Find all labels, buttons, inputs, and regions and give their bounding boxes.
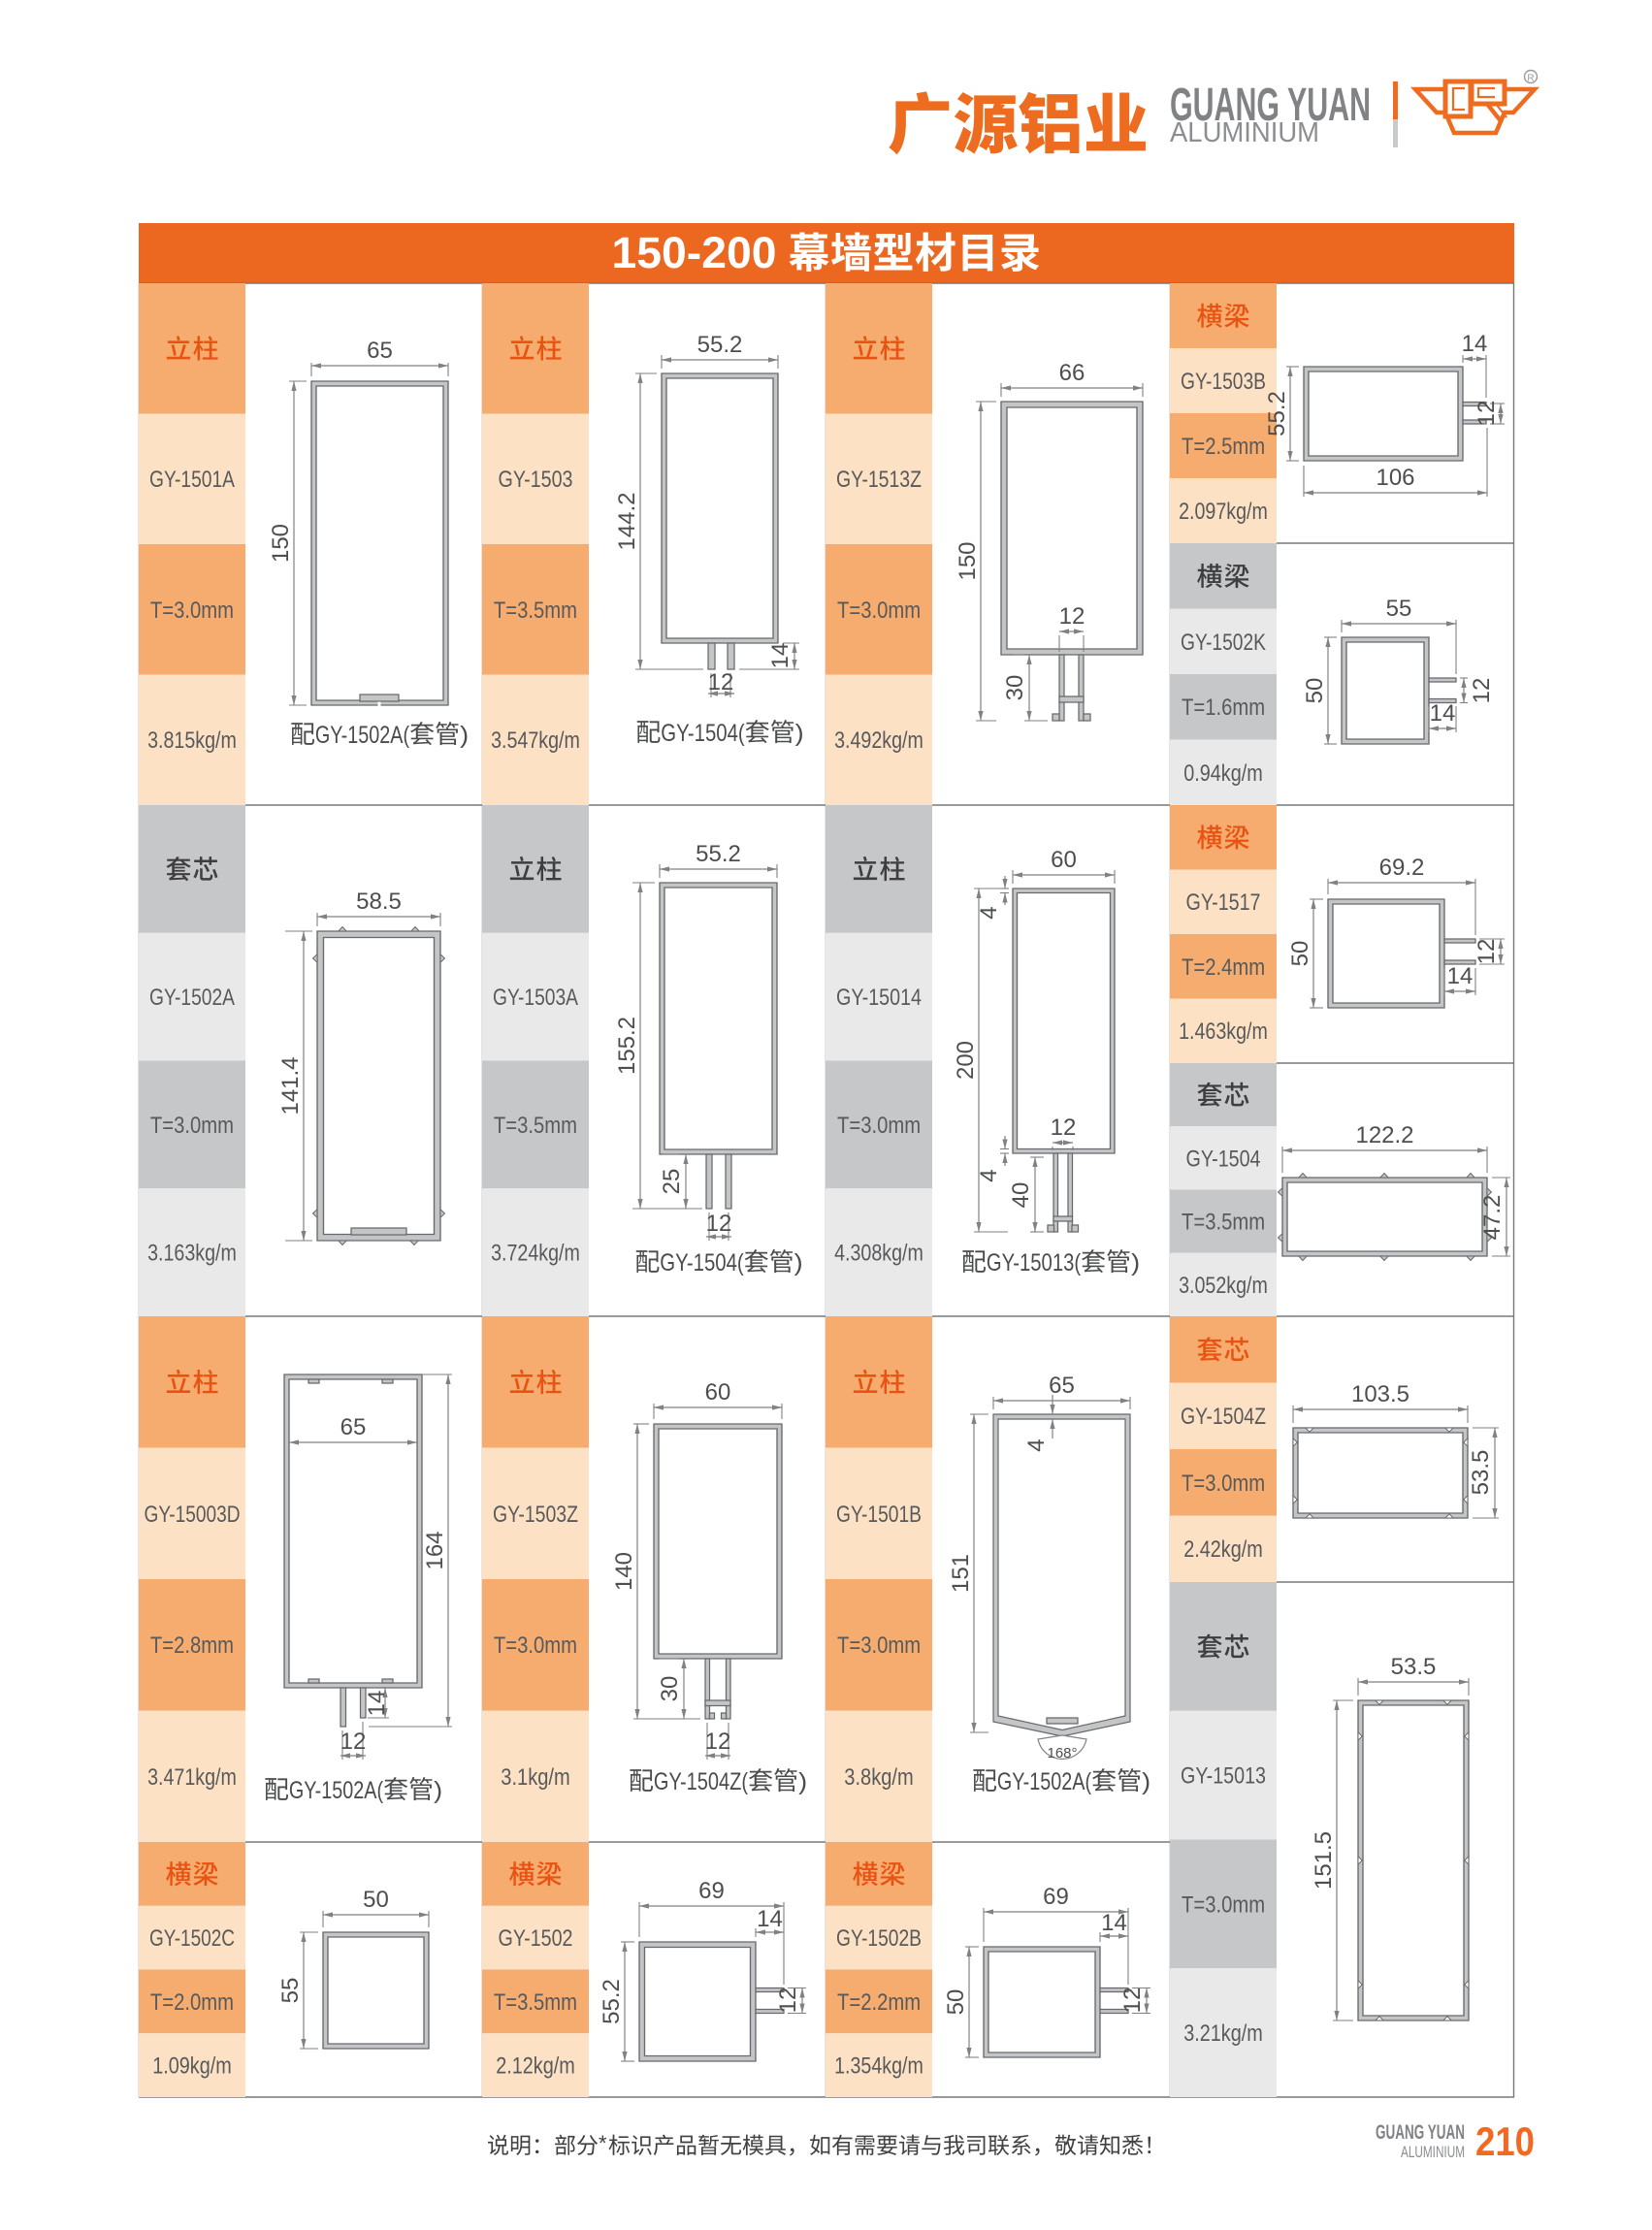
svg-text:GY-1502B: GY-1502B (836, 1925, 922, 1952)
svg-text:T=2.4mm: T=2.4mm (1182, 954, 1265, 981)
svg-text:GY-1502K: GY-1502K (1181, 630, 1266, 656)
svg-text:69: 69 (1043, 1884, 1069, 1910)
svg-text:1.09kg/m: 1.09kg/m (152, 2053, 232, 2080)
svg-text:2.097kg/m: 2.097kg/m (1179, 499, 1268, 525)
svg-text:55: 55 (277, 1978, 304, 2004)
svg-text:GY-1501B: GY-1501B (836, 1502, 922, 1528)
svg-text:R: R (1527, 74, 1534, 84)
svg-text:GY-1502A(: GY-1502A( (315, 722, 410, 749)
svg-text:210: 210 (1475, 2118, 1535, 2164)
svg-text:4: 4 (1023, 1438, 1050, 1451)
svg-text:12: 12 (340, 1729, 367, 1755)
svg-text:GY-1503: GY-1503 (499, 467, 573, 493)
svg-text:T=3.5mm: T=3.5mm (494, 1113, 577, 1139)
svg-text:ALUMINIUM: ALUMINIUM (1401, 2143, 1465, 2161)
svg-text:GY-1502A(: GY-1502A( (289, 1777, 384, 1804)
svg-text:): ) (795, 720, 804, 747)
svg-text:53.5: 53.5 (1468, 1450, 1494, 1496)
svg-text:GY-1503B: GY-1503B (1181, 369, 1266, 395)
svg-text:55.2: 55.2 (599, 1979, 625, 2024)
svg-text:30: 30 (1002, 675, 1028, 701)
svg-text:14: 14 (1462, 331, 1488, 357)
svg-text:164: 164 (422, 1531, 448, 1569)
svg-text:65: 65 (367, 338, 393, 364)
svg-text:GY-15014: GY-15014 (836, 985, 922, 1011)
svg-text:3.21kg/m: 3.21kg/m (1183, 2020, 1263, 2047)
svg-text:50: 50 (1287, 941, 1313, 967)
svg-text:GY-1502C: GY-1502C (149, 1925, 235, 1952)
svg-text:2.12kg/m: 2.12kg/m (496, 2053, 575, 2080)
svg-text:14: 14 (1430, 700, 1456, 727)
svg-text:): ) (794, 1249, 803, 1277)
svg-text:GY-1502A: GY-1502A (149, 985, 235, 1011)
svg-text:3.547kg/m: 3.547kg/m (491, 727, 580, 754)
svg-text:12: 12 (775, 1988, 801, 2014)
svg-text:55: 55 (1386, 596, 1412, 622)
svg-text:): ) (434, 1777, 442, 1804)
svg-text:30: 30 (657, 1676, 683, 1702)
svg-text:3.8kg/m: 3.8kg/m (844, 1764, 913, 1791)
svg-text:3.163kg/m: 3.163kg/m (147, 1241, 237, 1267)
svg-text:T=3.0mm: T=3.0mm (837, 1113, 921, 1139)
svg-text:50: 50 (363, 1887, 389, 1913)
svg-text:GY-1502: GY-1502 (499, 1925, 573, 1952)
svg-text:3.815kg/m: 3.815kg/m (147, 727, 237, 754)
svg-text:106: 106 (1376, 465, 1414, 491)
svg-text:): ) (460, 722, 469, 749)
svg-text:): ) (798, 1768, 807, 1795)
svg-text:53.5: 53.5 (1391, 1654, 1437, 1680)
svg-text:12: 12 (705, 1729, 731, 1755)
svg-text:150: 150 (268, 524, 294, 563)
svg-text:12: 12 (706, 1211, 732, 1237)
svg-text:3.724kg/m: 3.724kg/m (491, 1241, 580, 1267)
svg-text:55.2: 55.2 (696, 841, 741, 867)
svg-text:*: * (599, 2131, 607, 2155)
svg-text:14: 14 (1447, 963, 1474, 989)
svg-text:4.308kg/m: 4.308kg/m (834, 1241, 923, 1267)
svg-text:14: 14 (1101, 1910, 1127, 1936)
svg-text:GY-1513Z: GY-1513Z (836, 467, 922, 493)
svg-text:GY-15013: GY-15013 (1181, 1763, 1266, 1790)
svg-text:GY-1502A(: GY-1502A( (997, 1768, 1092, 1795)
svg-text:69.2: 69.2 (1379, 855, 1425, 881)
svg-text:4: 4 (976, 1169, 1002, 1181)
svg-text:151.5: 151.5 (1311, 1831, 1337, 1890)
svg-text:55.2: 55.2 (697, 332, 743, 358)
svg-text:3.492kg/m: 3.492kg/m (834, 727, 923, 754)
svg-text:T=3.0mm: T=3.0mm (837, 598, 921, 624)
svg-text:4: 4 (976, 906, 1002, 919)
svg-text:65: 65 (340, 1414, 367, 1440)
svg-text:144.2: 144.2 (614, 492, 640, 550)
svg-text:1.463kg/m: 1.463kg/m (1179, 1018, 1268, 1045)
svg-text:T=2.5mm: T=2.5mm (1182, 434, 1265, 460)
svg-text:T=3.0mm: T=3.0mm (1182, 1471, 1265, 1497)
svg-text:T=3.0mm: T=3.0mm (150, 598, 234, 624)
svg-text:60: 60 (705, 1379, 731, 1406)
svg-text:T=3.0mm: T=3.0mm (837, 1632, 921, 1659)
svg-text:14: 14 (767, 643, 794, 669)
svg-text:150: 150 (955, 541, 981, 580)
svg-text:ALUMINIUM: ALUMINIUM (1170, 117, 1319, 148)
svg-text:GY-1503Z: GY-1503Z (493, 1502, 578, 1528)
svg-text:T=3.5mm: T=3.5mm (494, 598, 577, 624)
svg-text:12: 12 (1051, 1115, 1077, 1141)
svg-text:14: 14 (364, 1691, 390, 1717)
svg-text:T=3.5mm: T=3.5mm (494, 1989, 577, 2016)
svg-text:50: 50 (1302, 678, 1328, 704)
svg-text:): ) (1131, 1249, 1140, 1277)
svg-text:2.42kg/m: 2.42kg/m (1183, 1536, 1263, 1563)
svg-text:): ) (1142, 1768, 1150, 1795)
svg-text:14: 14 (757, 1906, 783, 1932)
svg-text:3.471kg/m: 3.471kg/m (147, 1764, 237, 1791)
svg-text:GUANG YUAN: GUANG YUAN (1376, 2121, 1465, 2144)
svg-text:0.94kg/m: 0.94kg/m (1183, 760, 1263, 787)
svg-text:151: 151 (948, 1554, 974, 1593)
svg-text:55.2: 55.2 (1264, 391, 1290, 436)
svg-text:T=1.6mm: T=1.6mm (1182, 695, 1265, 721)
svg-text:T=3.0mm: T=3.0mm (150, 1113, 234, 1139)
svg-text:GY-1504Z(: GY-1504Z( (654, 1768, 749, 1795)
svg-text:12: 12 (1469, 678, 1495, 704)
svg-text:12: 12 (1474, 401, 1500, 427)
svg-text:140: 140 (611, 1552, 637, 1591)
svg-text:GY-15003D: GY-15003D (145, 1502, 241, 1528)
svg-text:103.5: 103.5 (1351, 1381, 1409, 1407)
svg-text:141.4: 141.4 (277, 1056, 304, 1115)
svg-text:GY-1517: GY-1517 (1186, 889, 1261, 916)
svg-text:50: 50 (943, 1989, 969, 2016)
svg-text:GY-1504(: GY-1504( (660, 1249, 744, 1277)
svg-text:12: 12 (1119, 1988, 1146, 2014)
svg-text:69: 69 (698, 1878, 725, 1904)
svg-text:66: 66 (1059, 360, 1085, 386)
svg-text:T=2.8mm: T=2.8mm (150, 1632, 234, 1659)
svg-text:GY-1501A: GY-1501A (149, 467, 235, 493)
svg-text:12: 12 (708, 669, 734, 695)
svg-text:1.354kg/m: 1.354kg/m (834, 2053, 923, 2080)
svg-text:T=3.0mm: T=3.0mm (1182, 1891, 1265, 1918)
svg-text:T=3.0mm: T=3.0mm (494, 1632, 577, 1659)
svg-text:122.2: 122.2 (1355, 1122, 1413, 1148)
svg-text:200: 200 (953, 1041, 979, 1080)
svg-text:12: 12 (1059, 603, 1085, 630)
svg-text:58.5: 58.5 (356, 889, 402, 915)
svg-text:12: 12 (1474, 939, 1500, 965)
svg-text:GY-1504(: GY-1504( (661, 720, 745, 747)
svg-text:60: 60 (1051, 847, 1077, 873)
svg-text:40: 40 (1008, 1182, 1034, 1209)
svg-text:T=2.0mm: T=2.0mm (150, 1989, 234, 2016)
svg-text:150-200: 150-200 (612, 228, 777, 277)
svg-text:GY-1504: GY-1504 (1186, 1146, 1261, 1172)
svg-text:3.1kg/m: 3.1kg/m (501, 1764, 569, 1791)
svg-text:T=3.5mm: T=3.5mm (1182, 1210, 1265, 1236)
svg-text:3.052kg/m: 3.052kg/m (1179, 1273, 1268, 1299)
svg-text:GY-1504Z: GY-1504Z (1181, 1404, 1266, 1430)
svg-text:GY-15013(: GY-15013( (987, 1249, 1082, 1277)
svg-text:T=2.2mm: T=2.2mm (837, 1989, 921, 2016)
svg-text:155.2: 155.2 (614, 1017, 640, 1075)
svg-text:65: 65 (1049, 1373, 1075, 1399)
svg-text:168°: 168° (1047, 1745, 1077, 1761)
svg-text:25: 25 (659, 1169, 685, 1195)
svg-text:47.2: 47.2 (1479, 1195, 1506, 1241)
svg-text:GY-1503A: GY-1503A (493, 985, 578, 1011)
